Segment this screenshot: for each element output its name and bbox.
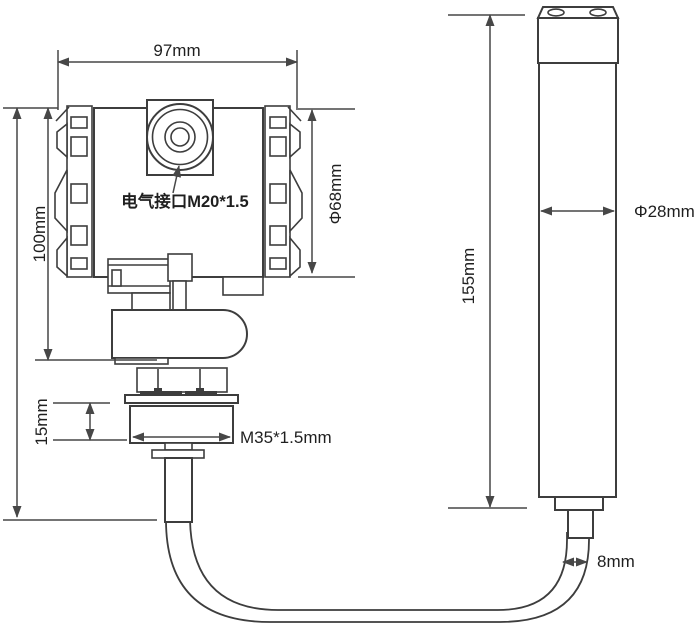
electrical-interface-label: 电气接口M20*1.5	[121, 191, 248, 211]
connection-cable	[166, 516, 589, 622]
cap-notch	[71, 184, 87, 203]
side-stub	[223, 277, 263, 295]
capsule-lip	[115, 358, 168, 364]
cable-outlet-pipe	[165, 458, 192, 522]
housing-right-cap	[265, 106, 302, 277]
cap-rib	[57, 124, 67, 157]
cap-rib	[57, 238, 67, 276]
neck	[165, 443, 192, 450]
housing-diameter-label: Φ68mm	[326, 164, 345, 225]
cap-notch	[71, 137, 87, 156]
cable-diameter-label: 8mm	[597, 552, 635, 571]
probe-body	[539, 63, 616, 497]
thread-length-label: 15mm	[32, 398, 51, 445]
probe-length-label: 155mm	[459, 248, 478, 305]
housing-width-label: 97mm	[153, 41, 200, 60]
housing-left-cap	[55, 106, 92, 277]
probe-head	[538, 18, 618, 63]
hex-nut	[137, 368, 227, 396]
mounting-flange	[125, 395, 238, 403]
cap-rib	[55, 170, 67, 231]
dimension-drawing: 97mm 100mm Φ68mm 电气接口M20*1.5 15mm M35*1.…	[0, 0, 700, 629]
probe-cable-gland	[568, 510, 593, 538]
probe-vent-hole	[548, 9, 564, 16]
drawing-svg: 97mm 100mm Φ68mm 电气接口M20*1.5 15mm M35*1.…	[0, 0, 700, 629]
cap-notch	[71, 258, 87, 269]
bracket-plate	[132, 293, 170, 310]
bracket-block	[168, 254, 192, 281]
collar	[152, 450, 204, 458]
housing-height-label: 100mm	[30, 206, 49, 263]
bracket-stem	[173, 281, 186, 310]
cable-inner-edge	[190, 516, 567, 610]
thread-spec-label: M35*1.5mm	[240, 428, 332, 447]
cap-notch	[71, 117, 87, 128]
electrical-port-hole	[171, 128, 189, 146]
probe-step	[555, 497, 603, 510]
sensor-probe	[538, 7, 618, 538]
transmitter-housing	[55, 100, 302, 458]
cap-notch	[71, 226, 87, 245]
sensor-capsule	[112, 310, 247, 358]
probe-diameter-label: Φ28mm	[634, 202, 695, 221]
probe-vent-hole	[590, 9, 606, 16]
